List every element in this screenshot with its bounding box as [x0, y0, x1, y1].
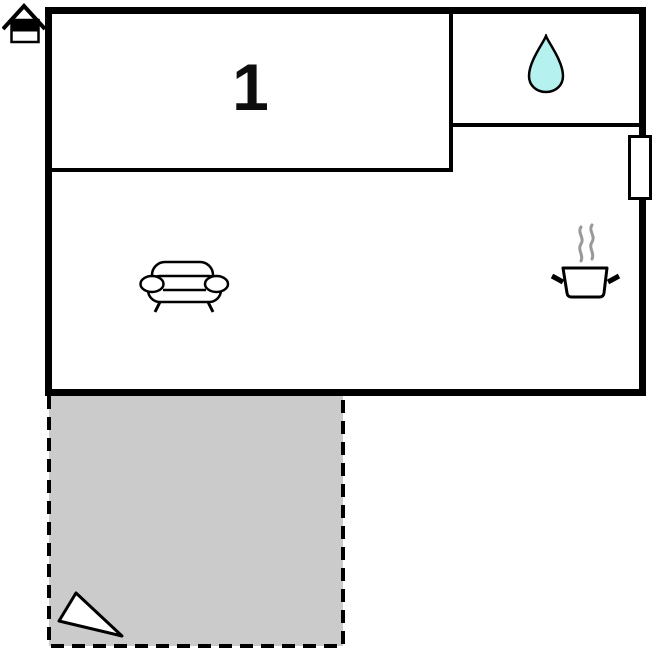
steam-icon — [591, 225, 593, 259]
cooking-pot-svg — [548, 220, 623, 300]
house-icon-svg — [2, 2, 46, 46]
room-label: 1 — [232, 54, 269, 120]
steam-icon — [580, 227, 582, 261]
wall-bathroom-bottom — [449, 123, 639, 127]
terrace-area — [46, 396, 346, 652]
room-bedroom-1: 1 — [52, 14, 449, 168]
terrace-svg — [46, 396, 346, 652]
floor-plan: 1 — [0, 0, 654, 652]
sofa-leg-right — [208, 302, 213, 312]
sofa-armrest-right — [205, 276, 228, 292]
water-droplet-shape — [529, 36, 563, 92]
wall-bedroom-bottom — [52, 168, 453, 172]
sofa-armrest-left — [141, 276, 164, 292]
house-band — [12, 20, 39, 32]
house-icon — [2, 2, 46, 46]
water-droplet-svg — [526, 34, 566, 94]
pot-body — [563, 268, 607, 297]
cooking-pot-icon — [548, 220, 623, 300]
wall-bedroom-bathroom — [449, 14, 453, 172]
sofa-svg — [138, 258, 230, 314]
sofa-icon — [138, 258, 230, 314]
window-marker — [628, 135, 652, 200]
water-droplet-icon — [526, 34, 566, 94]
pot-handle-left — [552, 276, 563, 282]
sofa-leg-left — [155, 302, 160, 312]
pot-handle-right — [608, 276, 619, 282]
